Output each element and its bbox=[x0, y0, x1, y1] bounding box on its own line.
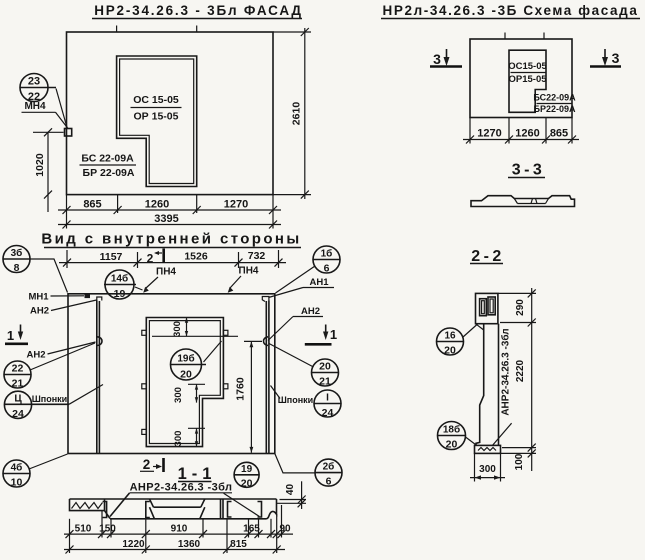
svg-text:1: 1 bbox=[7, 328, 14, 343]
svg-text:НР2л-34.26.3 -3Б Схема фасада: НР2л-34.26.3 -3Б Схема фасада bbox=[383, 3, 639, 18]
svg-text:20: 20 bbox=[241, 478, 253, 490]
svg-text:21: 21 bbox=[12, 378, 24, 390]
svg-text:2б: 2б bbox=[323, 461, 335, 473]
svg-text:ОС 15-05: ОС 15-05 bbox=[133, 94, 179, 106]
svg-text:3: 3 bbox=[612, 50, 620, 66]
svg-text:I: I bbox=[326, 393, 329, 404]
svg-text:19б: 19б bbox=[177, 353, 194, 365]
svg-text:1260: 1260 bbox=[515, 128, 539, 140]
svg-text:1360: 1360 bbox=[178, 539, 201, 550]
svg-text:300: 300 bbox=[173, 431, 184, 447]
svg-text:ОР15-05: ОР15-05 bbox=[508, 74, 547, 85]
svg-text:40: 40 bbox=[285, 484, 296, 496]
svg-text:Шпонки: Шпонки bbox=[278, 395, 313, 405]
svg-text:165: 165 bbox=[243, 524, 260, 535]
svg-text:100: 100 bbox=[514, 453, 525, 470]
svg-text:14б: 14б bbox=[111, 273, 128, 285]
svg-text:БР 22-09А: БР 22-09А bbox=[83, 167, 135, 179]
svg-text:910: 910 bbox=[171, 524, 188, 535]
svg-text:ОР 15-05: ОР 15-05 bbox=[134, 111, 179, 123]
svg-text:865: 865 bbox=[550, 128, 568, 140]
svg-text:АН1: АН1 bbox=[309, 277, 329, 288]
svg-text:18б: 18б bbox=[443, 424, 460, 436]
svg-text:24: 24 bbox=[12, 408, 24, 420]
svg-text:1220: 1220 bbox=[122, 539, 145, 550]
svg-text:3395: 3395 bbox=[154, 213, 178, 225]
svg-text:АНР2-34.26.3 -3бл: АНР2-34.26.3 -3бл bbox=[130, 482, 233, 494]
svg-text:3-3: 3-3 bbox=[512, 162, 546, 179]
svg-text:АНР2-34.26.3 -3бл: АНР2-34.26.3 -3бл bbox=[500, 328, 512, 415]
svg-text:1260: 1260 bbox=[145, 199, 169, 211]
svg-text:БР22-09А: БР22-09А bbox=[534, 104, 576, 114]
svg-text:1760: 1760 bbox=[235, 377, 247, 401]
svg-text:6: 6 bbox=[324, 263, 330, 275]
svg-text:510: 510 bbox=[75, 524, 92, 535]
svg-text:АН2: АН2 bbox=[26, 350, 45, 361]
svg-text:1270: 1270 bbox=[477, 128, 501, 140]
svg-text:19: 19 bbox=[241, 464, 253, 475]
svg-text:3: 3 bbox=[433, 51, 441, 67]
svg-text:ПН4: ПН4 bbox=[239, 266, 259, 277]
svg-text:Вид с внутренней стороны: Вид с внутренней стороны bbox=[41, 231, 301, 248]
svg-text:АН2: АН2 bbox=[301, 306, 320, 317]
svg-text:БС22-09А: БС22-09А bbox=[533, 93, 576, 103]
svg-text:1270: 1270 bbox=[224, 199, 248, 211]
svg-text:БС 22-09А: БС 22-09А bbox=[81, 153, 134, 165]
svg-text:23: 23 bbox=[28, 76, 40, 88]
svg-text:НР2-34.26.3 - 3Бл ФАСАД: НР2-34.26.3 - 3Бл ФАСАД bbox=[94, 3, 303, 18]
svg-text:150: 150 bbox=[99, 524, 116, 535]
svg-text:1: 1 bbox=[330, 327, 337, 342]
svg-text:3б: 3б bbox=[11, 247, 23, 259]
svg-text:6: 6 bbox=[326, 476, 332, 488]
svg-text:20: 20 bbox=[446, 439, 458, 451]
svg-text:20: 20 bbox=[180, 369, 192, 381]
svg-text:21: 21 bbox=[319, 376, 331, 388]
svg-text:1-1: 1-1 bbox=[178, 465, 217, 483]
svg-text:20: 20 bbox=[444, 345, 456, 357]
svg-text:865: 865 bbox=[83, 199, 101, 211]
svg-text:ПН4: ПН4 bbox=[156, 267, 176, 278]
svg-text:1157: 1157 bbox=[100, 251, 123, 263]
svg-text:815: 815 bbox=[230, 539, 247, 550]
svg-text:300: 300 bbox=[173, 387, 184, 403]
svg-text:2220: 2220 bbox=[515, 359, 526, 382]
svg-text:16: 16 bbox=[444, 331, 456, 342]
svg-text:4б: 4б bbox=[11, 462, 23, 474]
svg-text:20: 20 bbox=[319, 361, 331, 373]
svg-text:1б: 1б bbox=[321, 248, 333, 260]
svg-text:2610: 2610 bbox=[291, 102, 303, 126]
svg-text:10: 10 bbox=[11, 477, 23, 489]
svg-text:АН2: АН2 bbox=[30, 306, 49, 317]
svg-text:1020: 1020 bbox=[34, 153, 46, 177]
svg-text:732: 732 bbox=[248, 250, 266, 262]
svg-text:Шпонки: Шпонки bbox=[32, 394, 67, 404]
svg-text:ОС15-05: ОС15-05 bbox=[508, 61, 547, 72]
svg-text:290: 290 bbox=[515, 299, 526, 316]
svg-text:22: 22 bbox=[12, 363, 24, 375]
svg-text:2-2: 2-2 bbox=[471, 248, 505, 265]
svg-text:МН1: МН1 bbox=[28, 292, 49, 303]
svg-text:1526: 1526 bbox=[184, 251, 208, 263]
svg-text:8: 8 bbox=[14, 262, 20, 274]
svg-text:Ц: Ц bbox=[14, 394, 22, 405]
svg-text:300: 300 bbox=[479, 464, 496, 475]
svg-text:МН4: МН4 bbox=[24, 101, 46, 112]
svg-text:24: 24 bbox=[322, 407, 334, 419]
svg-text:90: 90 bbox=[279, 524, 291, 535]
svg-text:2: 2 bbox=[143, 457, 151, 472]
svg-text:300: 300 bbox=[172, 321, 183, 337]
svg-text:2: 2 bbox=[147, 252, 154, 266]
